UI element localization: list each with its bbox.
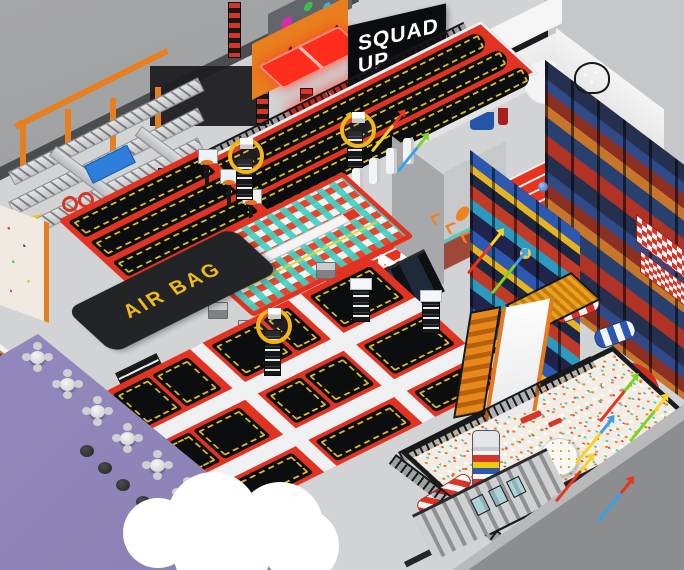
court-tower — [352, 286, 370, 322]
climbing-wall — [0, 205, 49, 323]
play-dome — [574, 62, 610, 94]
cafe-table — [112, 423, 142, 453]
play-ball-blue — [538, 182, 548, 192]
ottoman — [98, 462, 112, 474]
cafe-table — [82, 396, 112, 426]
cafe-table — [22, 342, 52, 372]
court-tower — [422, 298, 440, 334]
ring-target — [256, 308, 292, 344]
striped-pillar — [228, 2, 241, 58]
trampoline-park-render: SQUAD UP — [0, 0, 684, 570]
court-tower-cap — [420, 290, 442, 302]
court-tower-cap — [350, 278, 372, 290]
cloud-shape — [115, 468, 360, 570]
basketball-hoop — [227, 182, 231, 206]
ring-target — [228, 138, 264, 174]
turnstile-gate — [369, 158, 380, 184]
party-room-curtain-red — [498, 108, 508, 125]
basketball-hoop — [205, 162, 209, 186]
cafe-table — [52, 369, 82, 399]
turnstile-gate — [386, 148, 397, 174]
ring-target — [340, 112, 376, 148]
ninja-ring-obstacle — [62, 196, 78, 212]
cloud-lobe — [263, 508, 339, 570]
ottoman — [80, 445, 94, 457]
